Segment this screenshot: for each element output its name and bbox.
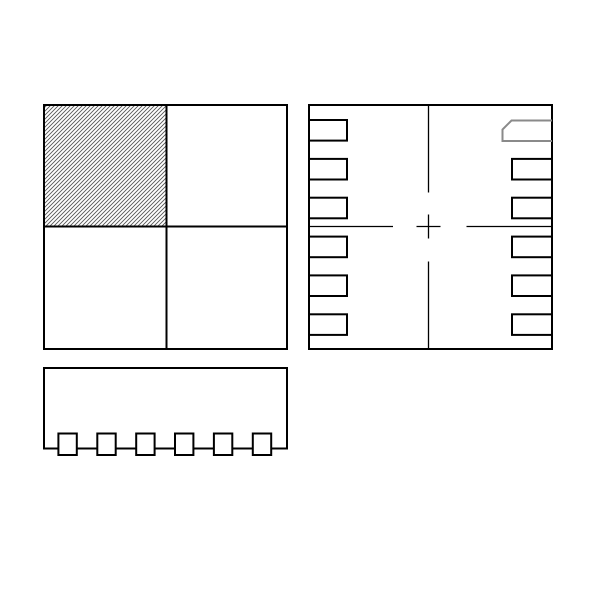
left-pad: [309, 198, 347, 219]
left-pad: [309, 275, 347, 296]
lead-pin: [97, 434, 115, 456]
side-view-body: [44, 368, 287, 449]
right-pad: [512, 237, 552, 258]
left-pad: [309, 237, 347, 258]
lead-pin: [58, 434, 76, 456]
right-pad: [512, 159, 552, 180]
pin1-hatched-quadrant: [44, 105, 167, 227]
right-pad: [512, 275, 552, 296]
right-pad: [512, 198, 552, 219]
package-outline-svg: [0, 0, 600, 600]
lead-pin: [253, 434, 271, 456]
left-pad: [309, 314, 347, 335]
left-pad: [309, 120, 347, 141]
lead-pin: [136, 434, 154, 456]
left-pad: [309, 159, 347, 180]
lead-pin: [175, 434, 193, 456]
right-pad: [512, 314, 552, 335]
lead-pin: [214, 434, 232, 456]
package-drawing-image: [0, 0, 600, 600]
